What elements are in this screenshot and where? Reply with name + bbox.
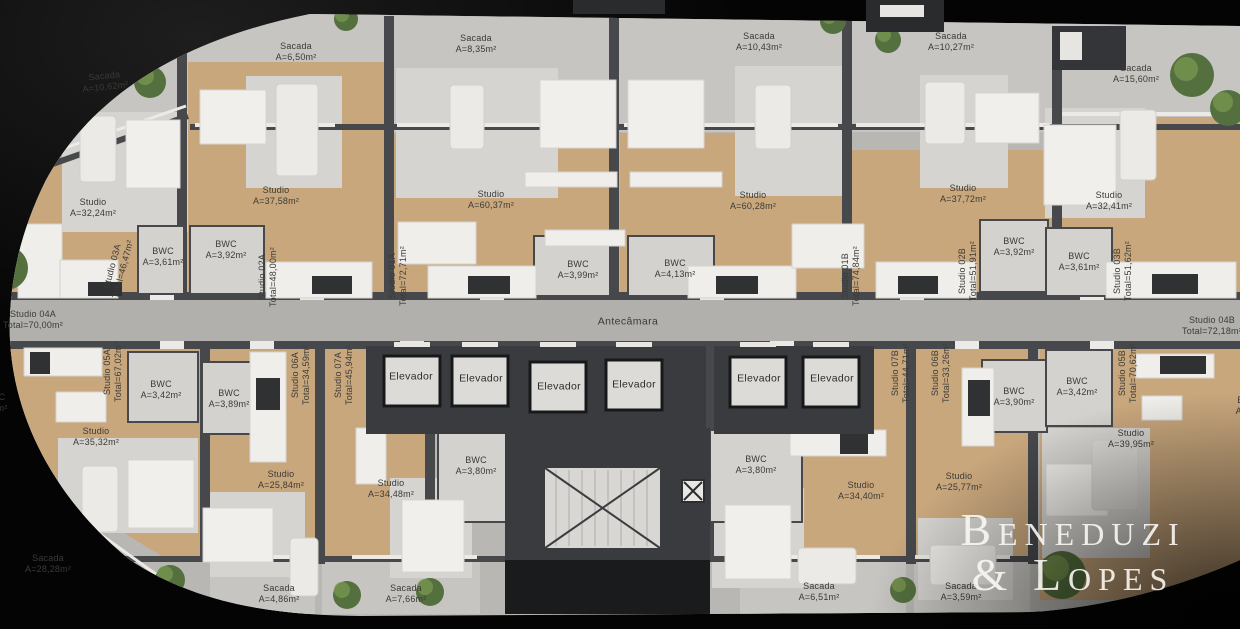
elevator-core [366, 342, 874, 434]
elevator-cab [452, 356, 508, 406]
elevator-cab [606, 360, 662, 410]
corridor-floor [0, 300, 1240, 341]
stairwell [505, 428, 710, 614]
elevator-cab [384, 356, 440, 406]
floor-plan-canvas: Sacada A=10,62m² Studio A=32,24m² Studio… [0, 0, 1240, 629]
elevator-cab [530, 362, 586, 412]
elevator-cab [803, 357, 859, 407]
elevator-cab [730, 357, 786, 407]
floor-plan-drawing [0, 0, 1240, 629]
